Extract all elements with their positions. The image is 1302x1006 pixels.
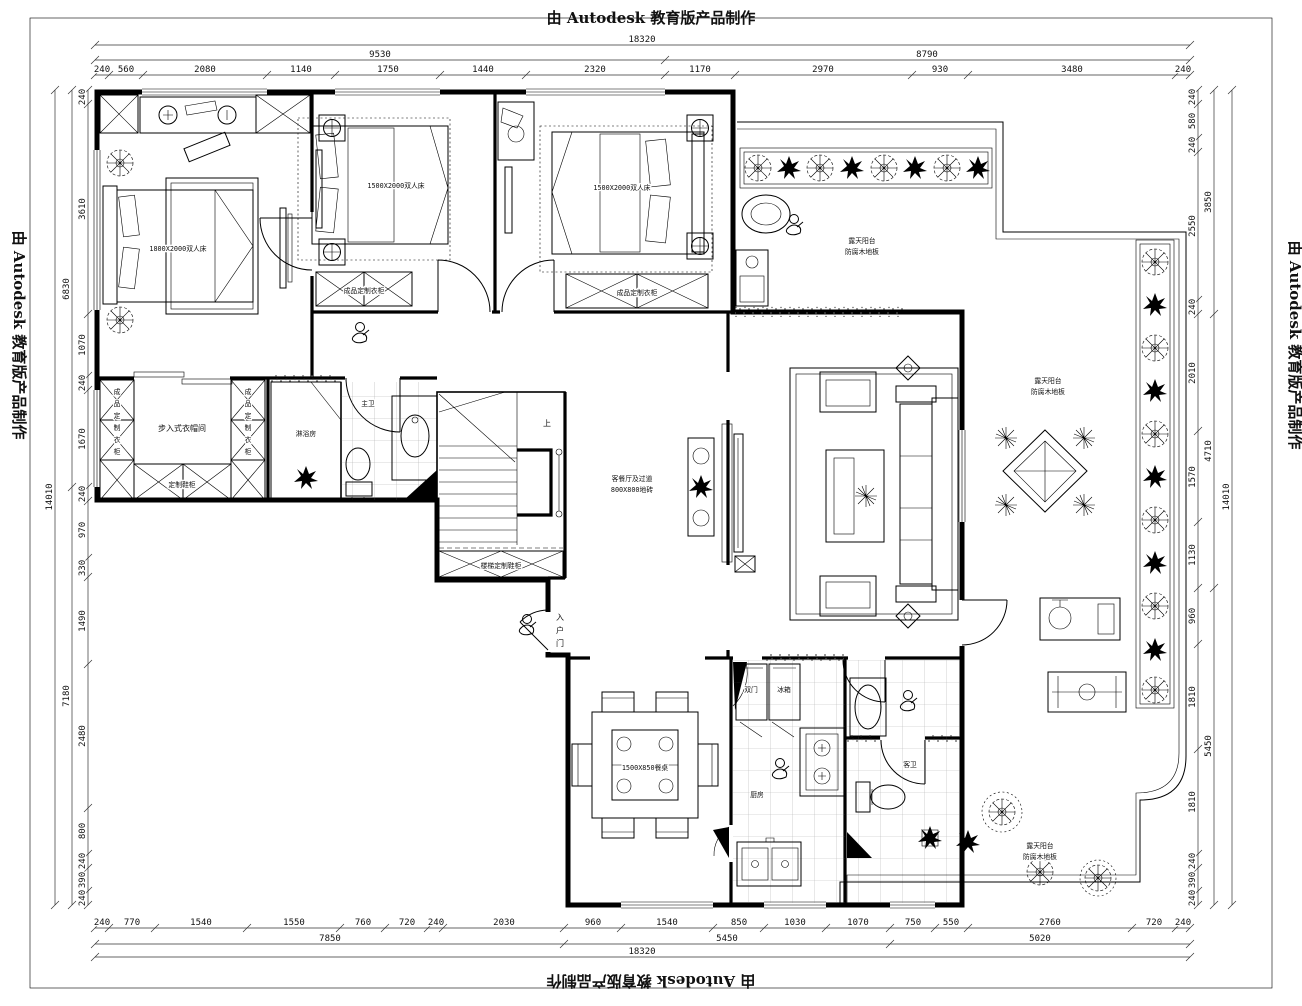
dim-label: 930: [932, 65, 948, 75]
rug: [540, 126, 712, 272]
dim-label: 2080: [194, 65, 216, 75]
dim-label: 960: [585, 918, 601, 928]
dim-label: 1030: [784, 918, 806, 928]
dim-label: 960: [1188, 608, 1198, 624]
kitchen: 双门 冰箱 厨房: [733, 660, 845, 903]
dim-label: 1540: [190, 918, 212, 928]
terrace-label: 露天阳台: [848, 236, 875, 245]
dim-label: 240: [78, 853, 88, 869]
tree-icon: [1027, 859, 1053, 885]
dim-label: 5020: [1029, 934, 1051, 944]
floorplan-drawing: 由 Autodesk 教育版产品制作 由 Autodesk 教育版产品制作 由 …: [0, 0, 1302, 1006]
dim-label: 770: [124, 918, 140, 928]
bed-size-label: 1500X2000双人床: [367, 181, 424, 190]
dim-label: 240: [78, 89, 88, 105]
door-bed3: [502, 260, 554, 312]
entry-door-label: 入户门: [556, 613, 564, 648]
door-bed2: [438, 260, 490, 312]
window: [526, 88, 665, 97]
window: [93, 150, 102, 310]
outdoor-chair-icon: [995, 427, 1017, 449]
dim-label: 800: [78, 823, 88, 839]
armchair: [820, 576, 876, 616]
bedside-table-icon: [687, 115, 713, 141]
dim-label: 1070: [78, 334, 88, 356]
corridor: 客餐厅及过道 800X800地砖: [611, 474, 653, 494]
dim-label: 1750: [377, 65, 399, 75]
window: [142, 88, 267, 97]
terrace-sublabel: 防腐木地板: [1023, 852, 1057, 861]
plant-icon: [689, 475, 713, 498]
desk: [498, 102, 534, 160]
dim-label: 1550: [283, 918, 305, 928]
bedroom-2: 1500X2000双人床 成品定制衣柜: [298, 115, 450, 306]
rug: [790, 368, 958, 620]
dim-label: 390: [78, 872, 88, 888]
dim-label: 5450: [716, 934, 738, 944]
door-terrace: [958, 600, 1008, 646]
shoe-cabinet-label: 定制鞋柜: [168, 480, 195, 489]
chair: [572, 744, 592, 786]
dim-label: 14010: [1222, 483, 1232, 510]
dim-label: 240: [1188, 299, 1198, 315]
kitchen-label: 厨房: [750, 790, 764, 799]
watermark-bottom: 由 Autodesk 教育版产品制作: [547, 972, 756, 990]
sofa: [896, 386, 958, 602]
tv-panel: [505, 167, 512, 233]
blanket: [600, 134, 640, 252]
dim-label: 580: [1188, 113, 1198, 129]
plant-icon: [107, 307, 133, 333]
guest-bath-label: 客卫: [903, 760, 917, 769]
dim-label: 550: [943, 918, 959, 928]
dim-label: 4710: [1204, 440, 1214, 462]
pond: [742, 195, 790, 233]
dim-label: 7850: [319, 934, 341, 944]
person-icon: [519, 615, 536, 635]
side-table-lamp: [896, 604, 920, 628]
dim-label: 1540: [656, 918, 678, 928]
tv-panel: [280, 208, 292, 288]
cad-floorplan-window: 由 Autodesk 教育版产品制作 由 Autodesk 教育版产品制作 由 …: [0, 0, 1302, 1006]
outdoor-equipment: [1048, 672, 1126, 712]
door-kitchen-dining: [713, 827, 729, 858]
dim-label: 14010: [45, 483, 55, 510]
window: [621, 901, 713, 910]
dim-label: 240: [78, 486, 88, 502]
dim-label: 240: [1188, 137, 1198, 153]
dim-label: 240: [1188, 89, 1198, 105]
dim-label: 1570: [1188, 466, 1198, 488]
terrace-label: 露天阳台: [1034, 376, 1061, 385]
outdoor-chair-icon: [995, 494, 1017, 516]
dim-label: 2480: [78, 725, 88, 747]
bed-size-label: 1800X2000双人床: [149, 244, 206, 253]
wash-station: [736, 250, 768, 306]
watermark-left: 由 Autodesk 教育版产品制作: [10, 231, 28, 440]
dim-label: 560: [118, 65, 134, 75]
dim-label: 240: [1188, 853, 1198, 869]
window: [958, 430, 967, 522]
bench: [184, 132, 230, 161]
dim-label: 240: [1188, 890, 1198, 906]
dim-label: 2010: [1188, 362, 1198, 384]
dim-label: 240: [94, 65, 110, 75]
outdoor-chair-icon: [1073, 494, 1095, 516]
dim-label: 240: [1175, 65, 1191, 75]
dim-label: 3610: [78, 198, 88, 220]
door-closet-sliding: [134, 372, 232, 384]
door-entry: [520, 610, 553, 652]
dim-label: 1670: [78, 428, 88, 450]
dim-label: 330: [78, 560, 88, 576]
dresser: [140, 97, 256, 133]
dim-label: 9530: [369, 50, 391, 60]
chair: [602, 692, 634, 712]
dim-label: 970: [78, 522, 88, 538]
wardrobe-label: 成品定制衣柜: [617, 288, 658, 297]
dim-label: 2550: [1188, 215, 1198, 237]
dim-label: 7180: [62, 685, 72, 707]
bedside-table-icon: [319, 239, 345, 265]
tree-icon: [1085, 865, 1111, 891]
armchair: [820, 372, 876, 412]
watermark-top: 由 Autodesk 教育版产品制作: [547, 9, 756, 27]
dim-label: 240: [78, 890, 88, 906]
dim-label: 8790: [916, 50, 938, 60]
chair: [698, 744, 718, 786]
wardrobe-label: 成品定制衣柜: [344, 286, 385, 295]
closet-label: 步入式衣帽间: [158, 423, 206, 433]
dim-label: 240: [94, 918, 110, 928]
dim-label: 240: [428, 918, 444, 928]
dim-label: 18320: [628, 35, 655, 45]
terrace-sublabel: 防腐木地板: [1031, 387, 1065, 396]
dim-label: 1140: [290, 65, 312, 75]
outdoor-chair-icon: [1073, 427, 1095, 449]
wall-hatch: [735, 306, 905, 317]
dim-label: 5450: [1204, 735, 1214, 757]
drain-icon: [294, 466, 318, 489]
dim-label: 3850: [1204, 191, 1214, 213]
bedside-table-icon: [319, 115, 345, 141]
bedroom-3: 1500X2000双人床 成品定制衣柜: [498, 102, 713, 308]
dim-label: 1810: [1188, 686, 1198, 708]
dim-label: 720: [1146, 918, 1162, 928]
chair: [602, 818, 634, 838]
tv-panel: [316, 150, 322, 228]
stair-up-label: 上: [543, 419, 551, 428]
wall-hatch: [270, 374, 336, 382]
plant-icon: [855, 485, 877, 507]
dim-label: 750: [905, 918, 921, 928]
dim-label: 1070: [847, 918, 869, 928]
corridor-sublabel: 800X800地砖: [611, 485, 653, 494]
terrace-label: 露天阳台: [1026, 841, 1053, 850]
staircase: 上 楼梯定制鞋柜: [437, 392, 565, 578]
dim-label: 3480: [1061, 65, 1083, 75]
dim-label: 1490: [78, 610, 88, 632]
dining-room: 1500X850餐桌: [572, 692, 718, 838]
dim-label: 1810: [1188, 791, 1198, 813]
window: [335, 88, 440, 97]
outdoor-equipment: [1040, 598, 1120, 640]
dining-table-label: 1500X850餐桌: [622, 763, 669, 772]
dim-label: 1170: [689, 65, 711, 75]
terrace-sublabel: 防腐木地板: [845, 247, 879, 256]
bedside-table-icon: [687, 233, 713, 259]
dim-label: 390: [1188, 872, 1198, 888]
master-bedroom: 1800X2000双人床: [100, 95, 310, 333]
shower-label: 淋浴房: [296, 429, 317, 438]
stair-cabinet-label: 楼梯定制鞋柜: [481, 561, 522, 570]
master-bath: 淋浴房 主卫: [271, 382, 437, 501]
dim-label: 240: [1175, 918, 1191, 928]
dim-label: 6830: [62, 278, 72, 300]
chair: [656, 692, 688, 712]
dim-label: 1130: [1188, 544, 1198, 566]
dim-label: 2320: [584, 65, 606, 75]
fridge-label: 双门: [744, 685, 758, 694]
dim-label: 760: [355, 918, 371, 928]
person-icon: [352, 323, 369, 343]
dim-label: 240: [78, 375, 88, 391]
plant-icon: [107, 150, 133, 176]
watermark-right: 由 Autodesk 教育版产品制作: [1286, 241, 1302, 450]
dim-label: 18320: [628, 947, 655, 957]
corridor-label: 客餐厅及过道: [612, 474, 653, 483]
master-bath-label: 主卫: [361, 399, 375, 408]
outdoor-table: [1003, 430, 1087, 512]
chair: [656, 818, 688, 838]
walk-in-closet: 成品定制衣柜 成品定制衣柜 步入式衣帽间 定制鞋柜: [100, 380, 265, 500]
dim-label: 2970: [812, 65, 834, 75]
tree-icon: [989, 799, 1015, 825]
dim-label: 2760: [1039, 918, 1061, 928]
dim-label: 720: [399, 918, 415, 928]
bed-size-label: 1500X2000双人床: [593, 183, 650, 192]
dim-label: 2030: [493, 918, 515, 928]
fridge-label: 冰箱: [777, 685, 791, 694]
dim-label: 1440: [472, 65, 494, 75]
dim-label: 850: [731, 918, 747, 928]
person-icon: [786, 215, 803, 235]
guest-bath: 客卫: [847, 660, 960, 903]
